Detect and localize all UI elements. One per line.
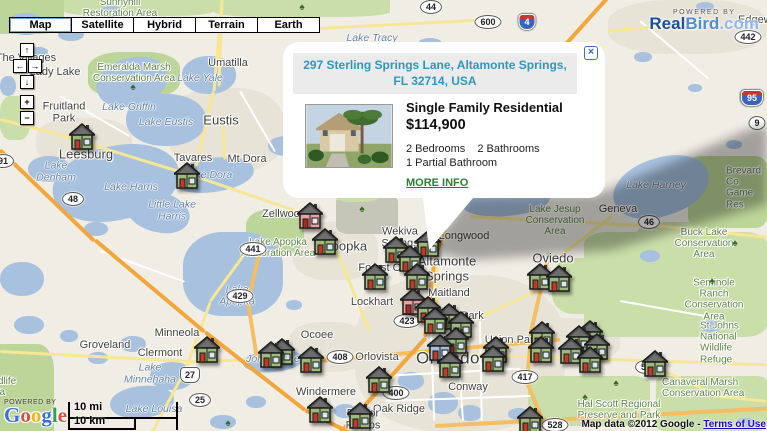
- house-marker[interactable]: [307, 396, 333, 424]
- scale-km: 10 km: [74, 415, 105, 427]
- listing-specs: 2 Bedrooms2 Bathrooms 1 Partial Bathroom: [406, 142, 563, 171]
- infowindow-address: 297 Sterling Springs Lane, Altamonte Spr…: [293, 53, 577, 94]
- house-marker[interactable]: [194, 336, 220, 364]
- more-info-link[interactable]: MORE INFO: [406, 177, 468, 189]
- bathrooms: 2 Bathrooms: [477, 143, 539, 155]
- map-type-button-hybrid[interactable]: Hybrid: [133, 17, 196, 33]
- terms-of-use-link[interactable]: Terms of Use: [703, 419, 766, 430]
- house-marker[interactable]: [312, 228, 338, 256]
- property-type: Single Family Residential: [406, 100, 563, 115]
- house-marker[interactable]: [404, 263, 430, 291]
- bedrooms: 2 Bedrooms: [406, 143, 465, 155]
- house-marker[interactable]: [362, 263, 388, 291]
- map-type-bar: MapSatelliteHybridTerrainEarth: [10, 17, 320, 33]
- house-marker[interactable]: [347, 402, 373, 430]
- map-data-credit: Map data ©2012 Google -: [582, 419, 704, 430]
- google-letter: o: [31, 403, 42, 427]
- google-letter: g: [41, 403, 52, 427]
- map-type-button-earth[interactable]: Earth: [257, 17, 320, 33]
- house-marker[interactable]: [297, 202, 323, 230]
- map-view: The VillagesSunnyhill Restoration AreaLa…: [0, 0, 767, 431]
- house-marker[interactable]: [546, 265, 572, 293]
- pan-up-button[interactable]: ↑: [20, 43, 34, 57]
- google-logo[interactable]: POWERED BY Google: [4, 399, 67, 425]
- zoom-out-button[interactable]: −: [20, 111, 34, 125]
- pan-down-button[interactable]: ↓: [20, 75, 34, 89]
- partial-bathroom: 1 Partial Bathroom: [406, 157, 497, 169]
- pan-right-button[interactable]: →: [28, 59, 42, 73]
- map-type-button-terrain[interactable]: Terrain: [195, 17, 258, 33]
- google-letter: e: [58, 403, 67, 427]
- house-marker[interactable]: [437, 351, 463, 379]
- house-marker[interactable]: [298, 346, 324, 374]
- house-marker[interactable]: [366, 366, 392, 394]
- listing-details: Single Family Residential $114,900 2 Bed…: [406, 100, 563, 191]
- house-marker[interactable]: [480, 345, 506, 373]
- property-photo[interactable]: [305, 104, 393, 168]
- house-marker[interactable]: [174, 162, 200, 190]
- house-marker[interactable]: [528, 336, 554, 364]
- close-icon[interactable]: ×: [584, 46, 598, 60]
- house-marker[interactable]: [258, 341, 284, 369]
- pan-left-button[interactable]: ←: [13, 59, 27, 73]
- scale-bar: 10 mi 10 km: [66, 398, 182, 431]
- realbird-wordmark: RealBird.com: [649, 16, 759, 31]
- google-letter: G: [4, 403, 20, 427]
- realbird-logo[interactable]: POWERED BY RealBird.com: [649, 9, 759, 31]
- google-wordmark: Google: [4, 406, 67, 425]
- listing-price: $114,900: [406, 117, 563, 133]
- map-type-button-satellite[interactable]: Satellite: [71, 17, 134, 33]
- zoom-in-button[interactable]: +: [20, 95, 34, 109]
- google-letter: o: [20, 403, 31, 427]
- scale-miles: 10 mi: [74, 401, 102, 413]
- house-marker[interactable]: [517, 406, 543, 431]
- house-marker[interactable]: [642, 350, 668, 378]
- house-marker[interactable]: [577, 346, 603, 374]
- house-marker[interactable]: [69, 123, 95, 151]
- map-attribution: Map data ©2012 Google - Terms of Use: [582, 419, 766, 430]
- map-type-button-map[interactable]: Map: [9, 17, 72, 33]
- info-window: 297 Sterling Springs Lane, Altamonte Spr…: [283, 42, 605, 198]
